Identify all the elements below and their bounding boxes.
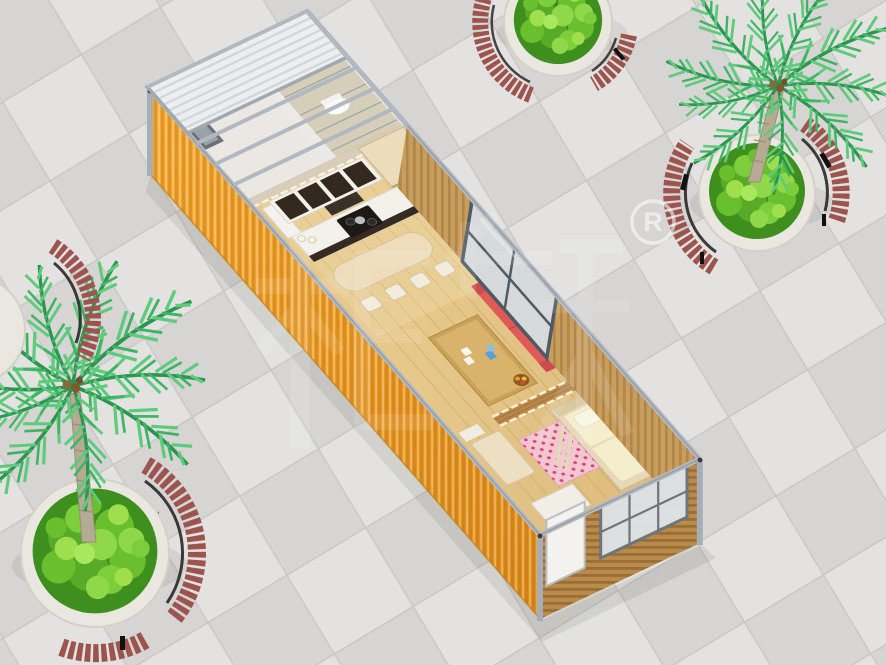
corner-post (537, 535, 543, 621)
green-bush (33, 489, 158, 614)
corner-post (697, 459, 703, 545)
corner-bolt (538, 534, 543, 539)
bench-leg (120, 636, 125, 650)
registered-letter: R (643, 207, 663, 237)
container-house-render: R (0, 0, 886, 665)
bench-leg (700, 252, 704, 264)
corner-bolt (698, 458, 703, 463)
corner-post (147, 90, 153, 176)
bench-leg (822, 214, 826, 226)
